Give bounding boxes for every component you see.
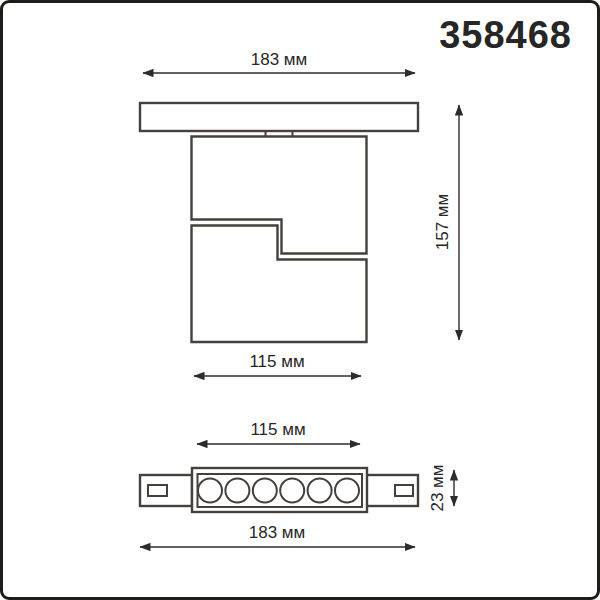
- dim-label-front-track-width: 183 мм: [251, 50, 307, 70]
- dim-label-front-total-height: 157 мм: [433, 194, 453, 250]
- track-tab-right: [367, 475, 419, 506]
- led-circle: [198, 479, 222, 503]
- dim-label-front-body-width: 115 мм: [249, 352, 304, 372]
- led-circle: [335, 479, 359, 503]
- led-circle: [280, 479, 304, 503]
- led-circle: [225, 479, 249, 503]
- dim-label-bottom-body-width: 115 мм: [250, 420, 305, 440]
- dim-label-bottom-body-height: 23 мм: [428, 464, 448, 511]
- technical-drawing: [0, 0, 600, 600]
- led-circle: [308, 479, 332, 503]
- track-profile: [140, 103, 418, 131]
- dim-label-bottom-track-width: 183 мм: [249, 523, 305, 543]
- front-view: [140, 73, 459, 376]
- led-circle: [253, 479, 277, 503]
